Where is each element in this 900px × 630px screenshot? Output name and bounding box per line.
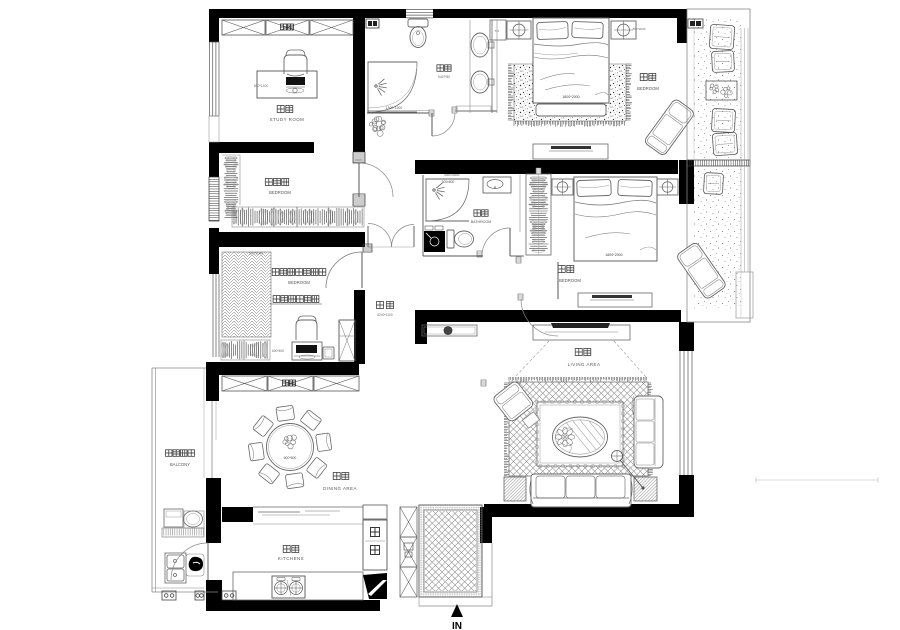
svg-text:600Cx600L: 600Cx600L: [444, 173, 460, 177]
svg-text:1300*1200: 1300*1200: [386, 106, 403, 110]
svg-text:5437*80: 5437*80: [438, 75, 450, 79]
svg-text:500*2000: 500*2000: [633, 27, 646, 31]
svg-text:1800*2000: 1800*2000: [562, 95, 579, 99]
svg-text:600*1400: 600*1400: [254, 84, 269, 88]
svg-text:6200*1100: 6200*1100: [377, 313, 392, 317]
svg-text:BEDROOM: BEDROOM: [559, 278, 581, 283]
svg-text:BEDROOM: BEDROOM: [288, 280, 310, 285]
svg-text:IN: IN: [452, 621, 462, 630]
svg-text:600*400: 600*400: [272, 349, 284, 353]
svg-text:LIVING AREA: LIVING AREA: [568, 362, 601, 367]
svg-text:BEDROOM: BEDROOM: [637, 86, 659, 91]
svg-text:520*2040: 520*2040: [249, 252, 264, 256]
svg-text:DINING AREA: DINING AREA: [323, 486, 357, 491]
svg-text:BALCONY: BALCONY: [170, 462, 190, 467]
svg-text:KITCHENS: KITCHENS: [278, 556, 304, 561]
svg-text:600*600: 600*600: [284, 456, 297, 460]
svg-text:600x600: 600x600: [442, 180, 455, 184]
svg-text:BEDROOM: BEDROOM: [269, 190, 291, 195]
svg-text:1800*2000: 1800*2000: [605, 253, 622, 257]
svg-text:BATHROOM: BATHROOM: [471, 220, 492, 224]
svg-text:STUDY ROOM: STUDY ROOM: [270, 117, 305, 122]
